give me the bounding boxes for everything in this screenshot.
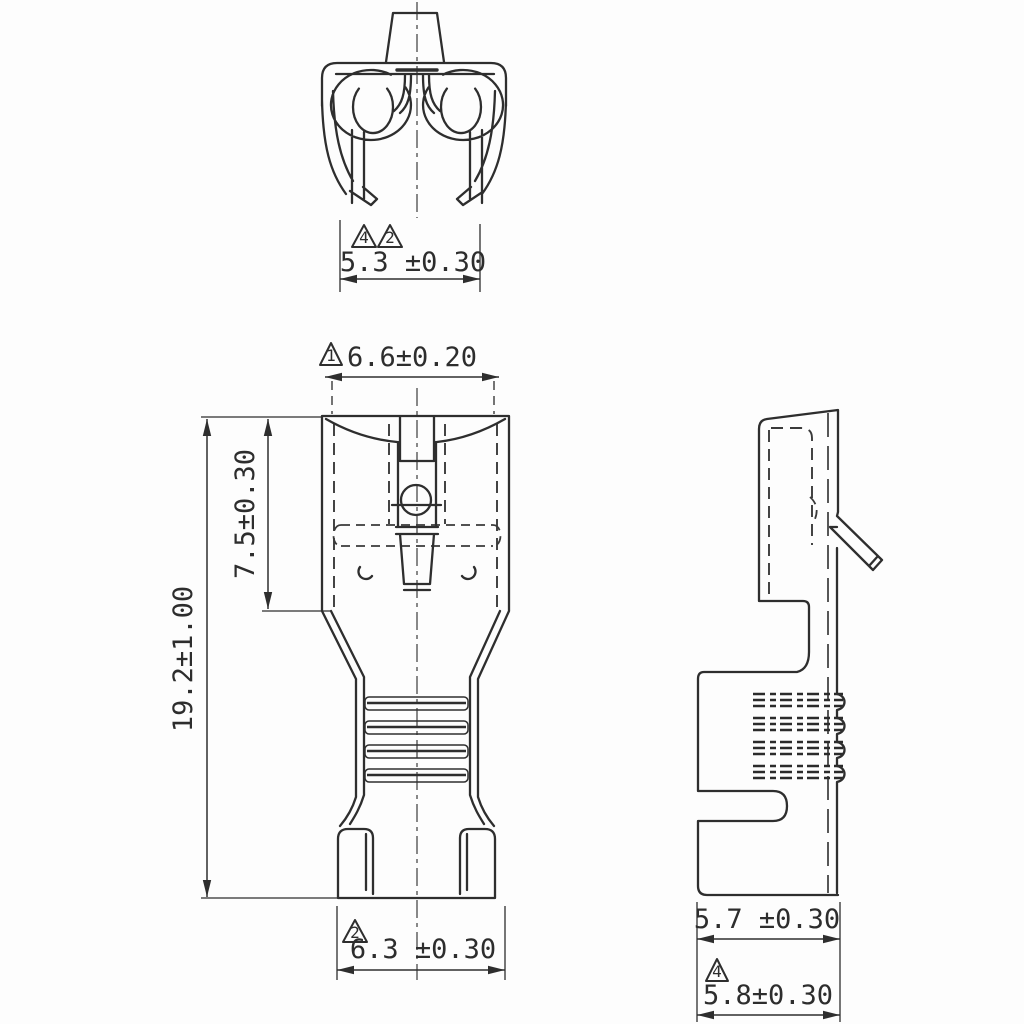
arrowhead-top [203, 419, 211, 436]
dimension-label: 5.8±0.30 [703, 980, 833, 1011]
front-view-part-outline [322, 416, 509, 898]
arrowhead-right [823, 1011, 840, 1019]
extension-lines [332, 381, 494, 414]
lance-root-hidden [810, 497, 817, 519]
dimension-label: 5.7 ±0.30 [694, 904, 840, 935]
side-view: 5.7 ±0.30 4 5.8±0.30 [694, 410, 882, 1022]
end-view-part-outline [322, 13, 506, 205]
dimension-label: 6.6±0.20 [347, 342, 477, 373]
dimension-receptacle-width: 1 6.6±0.20 [320, 342, 499, 414]
serration-row [753, 718, 843, 730]
arrowhead-top [264, 419, 272, 436]
dimension-label: 5.3 ±0.30 [340, 247, 486, 278]
arrowhead-bottom [203, 880, 211, 897]
arrowhead-right [488, 966, 505, 974]
contact-dimple-hole [401, 485, 431, 515]
wire-crimp-serrations [365, 697, 468, 782]
dimension-label: 19.2±1.00 [168, 586, 199, 732]
note-flag-label: 2 [385, 228, 395, 247]
side-view-part-outline [698, 410, 882, 895]
serration-row [753, 742, 843, 754]
dimension-label: 6.3 ±0.30 [350, 934, 496, 965]
note-flag-label: 4 [712, 962, 722, 981]
arrowhead-left [337, 966, 354, 974]
front-view: 1 6.6±0.20 7.5±0.30 19.2±1.00 2 6.3 ±0.3… [168, 342, 509, 980]
serration-row [753, 766, 843, 778]
side-view-hidden-lines [769, 428, 812, 599]
drawing-page: 4 2 5.3 ±0.30 1 6.6±0.20 [0, 0, 1024, 1024]
terminal-technical-drawing: 4 2 5.3 ±0.30 1 6.6±0.20 [0, 0, 1024, 1024]
dimension-insulation-crimp-width: 2 6.3 ±0.30 [337, 906, 505, 980]
serration-row [753, 694, 843, 706]
serrations-hidden [753, 694, 843, 778]
end-view: 4 2 5.3 ±0.30 [322, 2, 506, 292]
note-flag-label: 4 [359, 228, 369, 247]
arrowhead-left [325, 373, 342, 381]
arrowhead-right [482, 373, 499, 381]
dimension-side-lower-depth: 4 5.8±0.30 [697, 959, 840, 1019]
arrowhead-bottom [264, 592, 272, 609]
note-flag-label: 1 [326, 346, 336, 365]
dimension-receptacle-length: 7.5±0.30 [230, 419, 330, 611]
arrowhead-left [697, 935, 714, 943]
arrowhead-left [697, 1011, 714, 1019]
dimension-label: 7.5±0.30 [230, 449, 261, 579]
arrowhead-right [823, 935, 840, 943]
dimension-overall-length: 19.2±1.00 [168, 417, 445, 898]
dimension-end-view-width: 4 2 5.3 ±0.30 [340, 220, 486, 292]
